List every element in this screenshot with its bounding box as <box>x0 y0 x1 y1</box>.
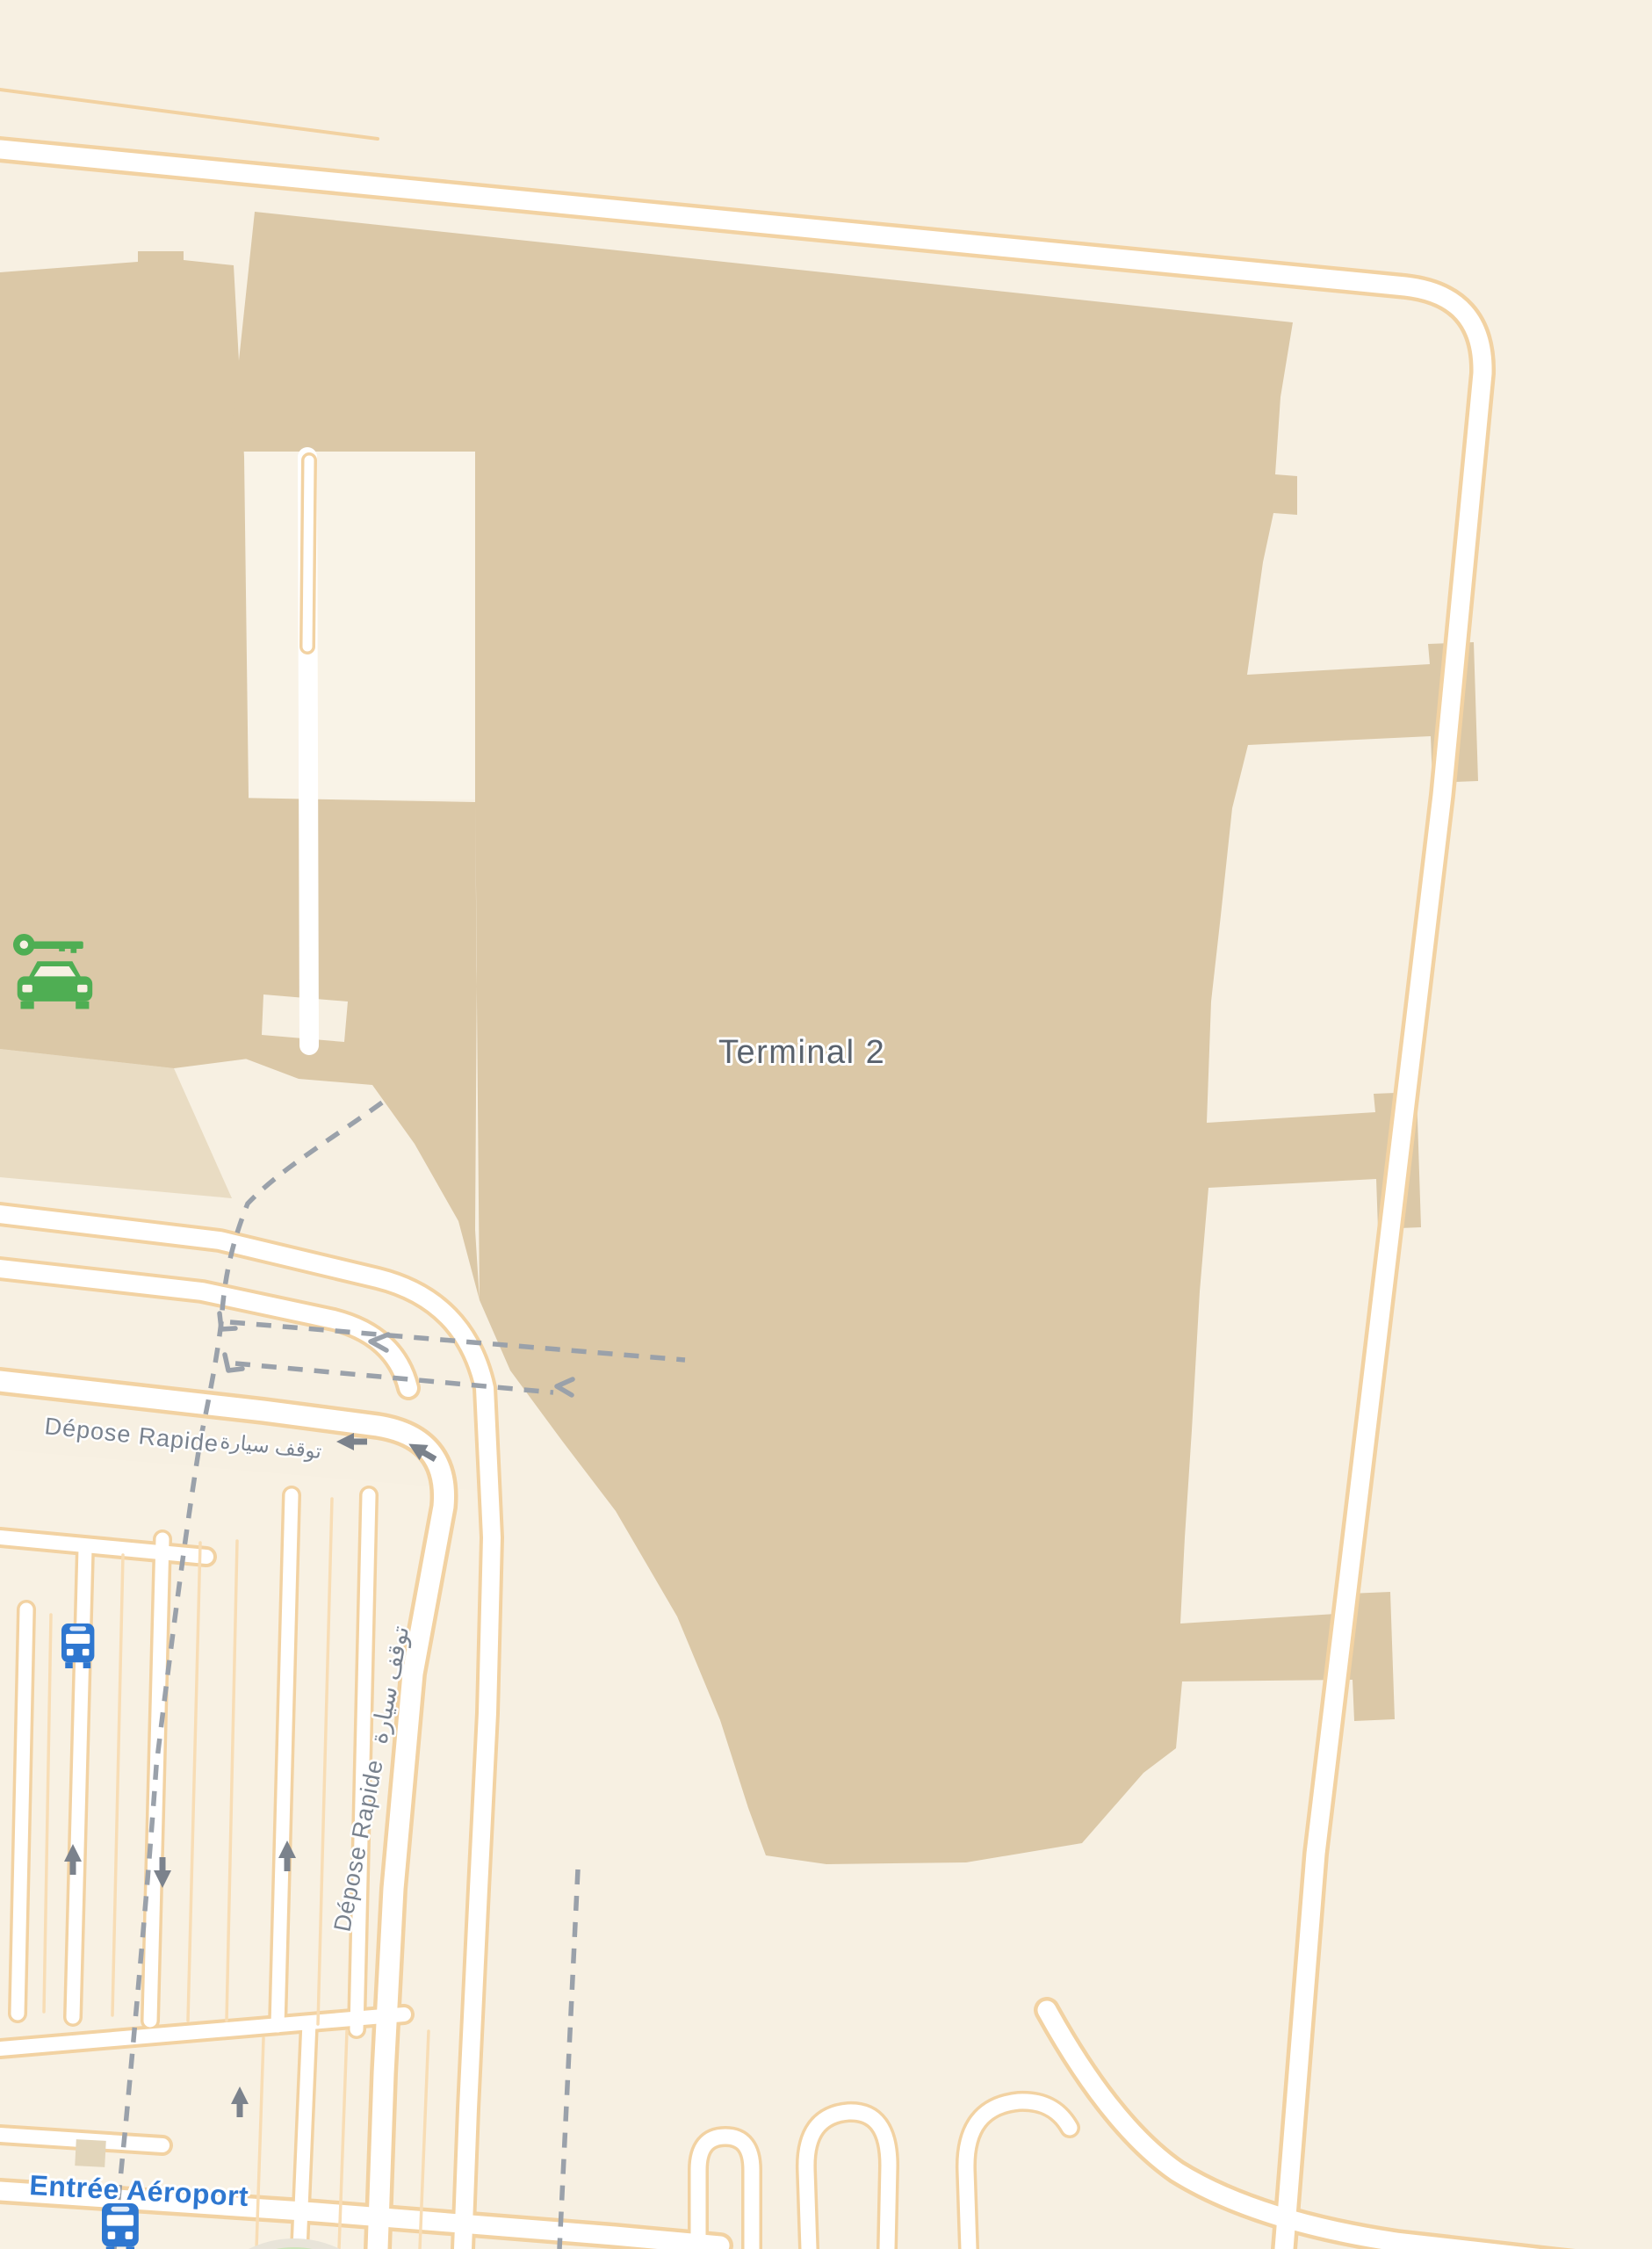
courtyard <box>230 450 476 799</box>
bus-stop-icon[interactable] <box>61 1623 94 1668</box>
terminal-2-label: Terminal 2 <box>718 1034 885 1071</box>
small-building <box>75 2139 106 2167</box>
courtyard-walkway <box>307 457 309 1045</box>
airport-map[interactable]: Terminal 2 Dépose Rapide توقف سيارة Dépo… <box>0 0 1652 2249</box>
bus-stop-icon[interactable] <box>102 2203 139 2249</box>
